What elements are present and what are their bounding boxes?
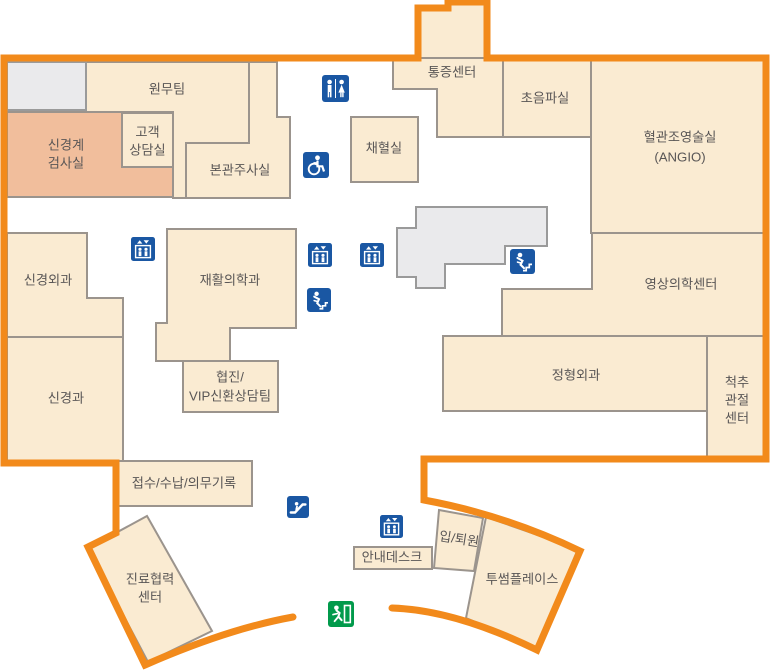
label-hyeopjin-2: VIP신환상담팀	[189, 388, 271, 403]
label-annae: 안내데스크	[362, 549, 423, 564]
label-bongwan: 본관주사실	[210, 162, 271, 177]
label-hyeopjin-1: 협진/	[216, 369, 244, 384]
room-jaehwal	[156, 229, 296, 361]
label-singyeongoegwa: 신경외과	[24, 272, 73, 287]
label-cheokchu-2: 관절	[725, 392, 749, 407]
elevator-icon	[360, 243, 384, 267]
label-jeopsu: 접수/수납/의무기록	[132, 475, 236, 490]
room-bump	[421, 5, 485, 58]
label-jaehwal: 재활의학과	[200, 272, 261, 287]
stairs-icon	[510, 249, 535, 274]
label-angio-1: 혈관조영술실	[644, 129, 717, 144]
label-gogaek-2: 상담실	[129, 142, 165, 157]
label-yeongsang: 영상의학센터	[645, 276, 718, 291]
label-singyeonggwa: 신경과	[48, 390, 84, 405]
floor-map-svg: 원무팀 고객 상담실 신경계 검사실 본관주사실 채혈실 통증센터 초음파실 혈…	[0, 0, 772, 670]
label-singyeonggye-1: 신경계	[48, 137, 84, 152]
restroom-icon	[322, 75, 349, 102]
label-cheokchu-3: 센터	[725, 410, 749, 425]
gray-room-topleft	[7, 62, 86, 110]
elevator-icon	[380, 515, 403, 538]
room-angio	[591, 58, 766, 233]
gray-core-center	[397, 207, 547, 288]
label-cheokchu-1: 척추	[725, 374, 749, 389]
label-angio-2: (ANGIO)	[654, 149, 705, 164]
label-wonmu: 원무팀	[149, 81, 185, 96]
label-jinryo-1: 진료협력	[126, 571, 175, 586]
label-gogaek-1: 고객	[135, 124, 159, 139]
elevator-icon	[131, 237, 155, 261]
elevator-icon	[308, 243, 332, 267]
escalator-icon	[287, 496, 309, 518]
label-jeonghyeong: 정형외과	[552, 367, 601, 382]
label-jinryo-2: 센터	[138, 589, 162, 604]
label-tongjeung: 통증센터	[428, 64, 477, 79]
label-twosome: 투썸플레이스	[486, 571, 559, 586]
label-singyeonggye-2: 검사실	[48, 155, 84, 170]
label-chaehyeol: 채혈실	[366, 140, 402, 155]
stairs-icon	[307, 288, 331, 312]
wheelchair-icon	[303, 152, 329, 178]
hospital-floor-map: 원무팀 고객 상담실 신경계 검사실 본관주사실 채혈실 통증센터 초음파실 혈…	[0, 0, 772, 670]
label-choeumpa: 초음파실	[521, 90, 570, 105]
room-gogaek	[122, 113, 173, 167]
room-yeongsang	[502, 233, 766, 336]
emergency-exit-icon	[328, 601, 354, 627]
